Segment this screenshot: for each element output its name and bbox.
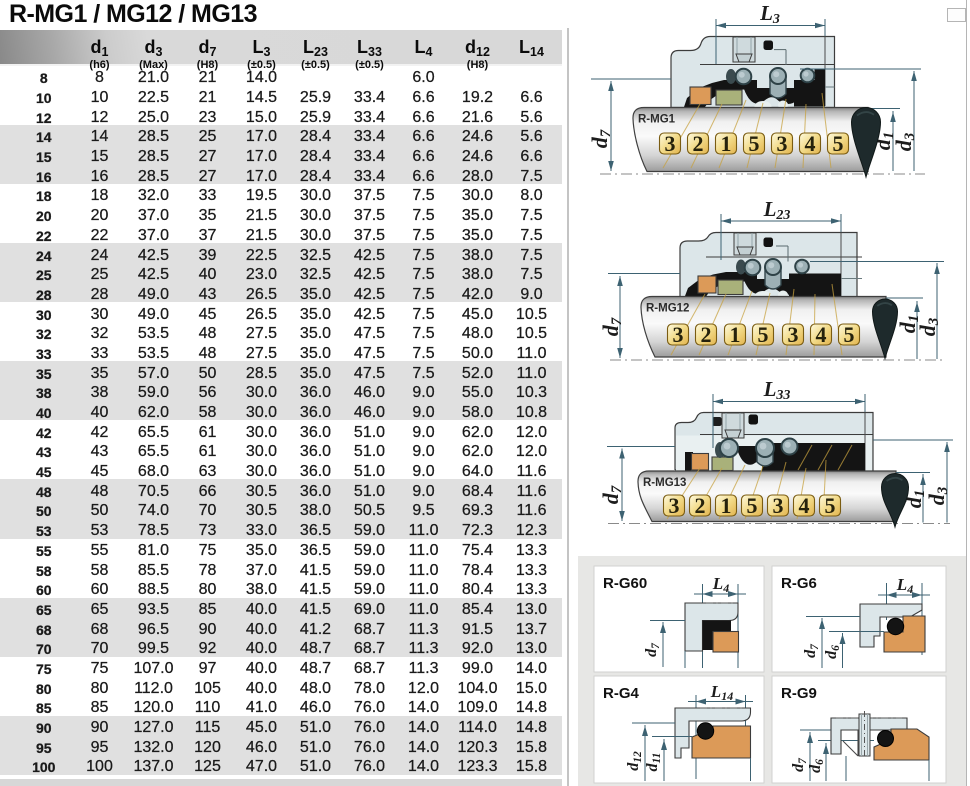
svg-text:2: 2 xyxy=(693,131,704,156)
svg-text:R-G60: R-G60 xyxy=(603,575,647,592)
svg-text:d7: d7 xyxy=(598,485,625,504)
svg-text:5: 5 xyxy=(833,131,844,156)
svg-text:1: 1 xyxy=(730,322,741,347)
svg-text:4: 4 xyxy=(816,322,827,347)
svg-text:3: 3 xyxy=(788,322,799,347)
svg-text:1: 1 xyxy=(721,493,732,518)
svg-text:L23: L23 xyxy=(763,197,791,223)
svg-text:3: 3 xyxy=(669,493,680,518)
svg-text:2: 2 xyxy=(701,322,712,347)
svg-text:d7: d7 xyxy=(598,317,625,336)
svg-text:5: 5 xyxy=(747,493,758,518)
svg-text:2: 2 xyxy=(695,493,706,518)
svg-text:5: 5 xyxy=(758,322,769,347)
svg-text:5: 5 xyxy=(749,131,760,156)
svg-text:R-MG13: R-MG13 xyxy=(643,477,686,489)
svg-text:3: 3 xyxy=(777,131,788,156)
svg-text:4: 4 xyxy=(805,131,816,156)
svg-text:3: 3 xyxy=(673,322,684,347)
svg-text:5: 5 xyxy=(825,493,836,518)
svg-text:3: 3 xyxy=(773,493,784,518)
svg-text:4: 4 xyxy=(799,493,810,518)
svg-text:R-G4: R-G4 xyxy=(603,685,639,702)
svg-text:1: 1 xyxy=(721,131,732,156)
svg-text:R-G6: R-G6 xyxy=(781,575,817,592)
svg-text:L3: L3 xyxy=(759,1,780,27)
svg-text:R-MG1: R-MG1 xyxy=(638,114,676,126)
svg-text:d3: d3 xyxy=(924,486,951,505)
svg-text:R-MG12: R-MG12 xyxy=(646,303,689,315)
svg-text:5: 5 xyxy=(844,322,855,347)
svg-text:R-G9: R-G9 xyxy=(781,685,817,702)
svg-text:d7: d7 xyxy=(587,129,614,148)
svg-text:L33: L33 xyxy=(763,377,791,403)
svg-text:3: 3 xyxy=(665,131,676,156)
